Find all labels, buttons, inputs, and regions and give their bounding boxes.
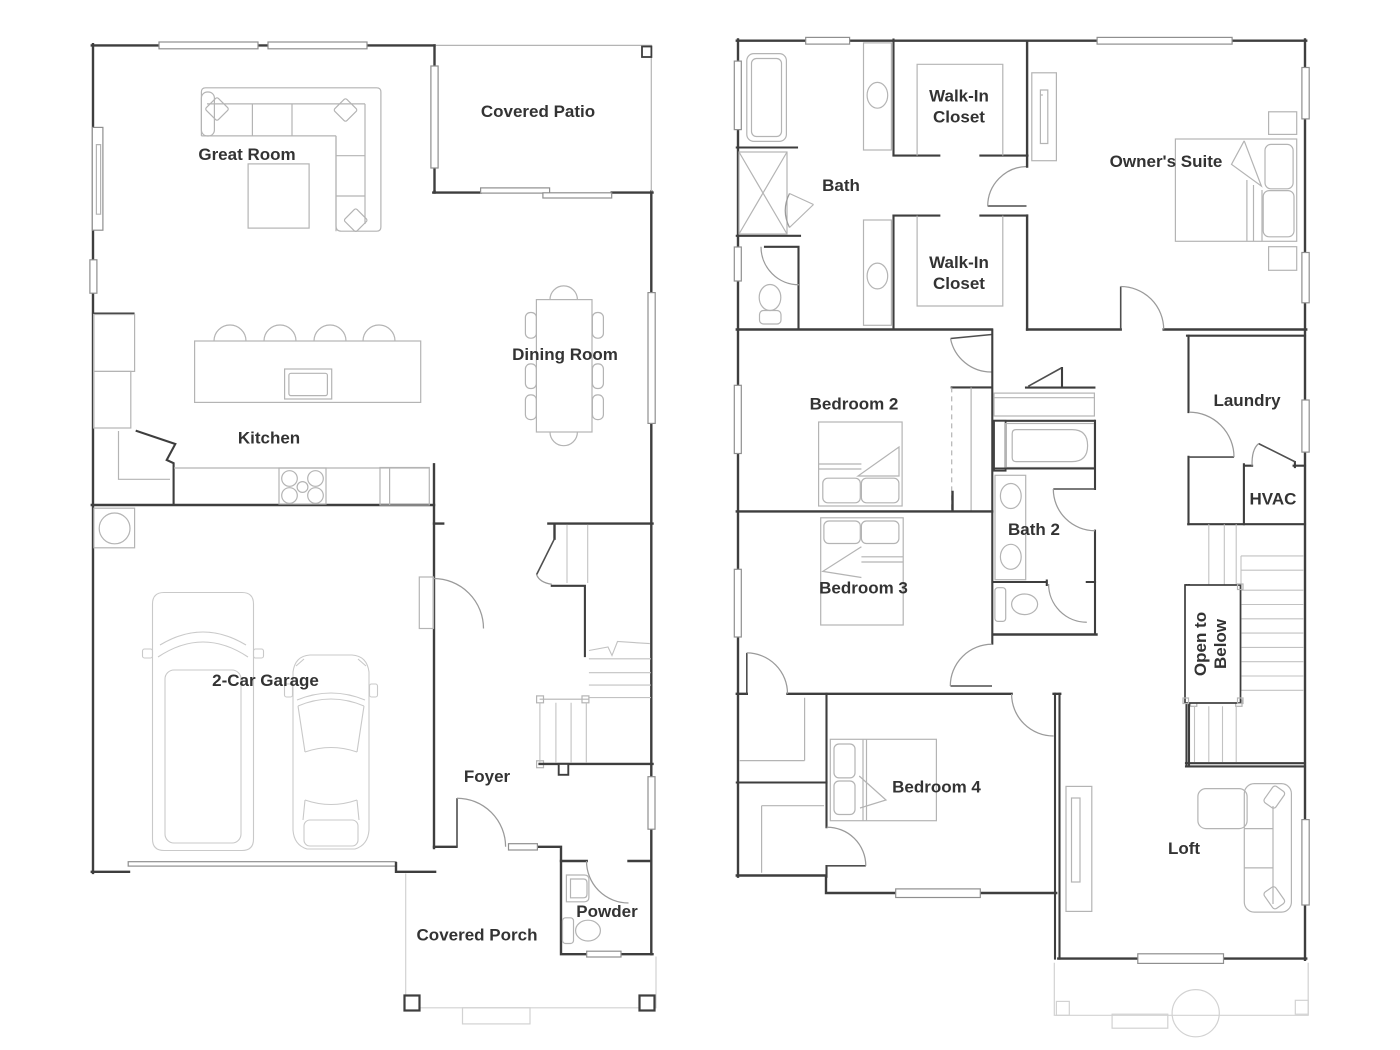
svg-text:Bedroom 3: Bedroom 3 — [819, 579, 908, 598]
svg-text:Great Room: Great Room — [198, 145, 295, 164]
svg-text:Closet: Closet — [933, 274, 985, 293]
svg-text:Bedroom 4: Bedroom 4 — [892, 778, 981, 797]
svg-text:Kitchen: Kitchen — [238, 429, 300, 448]
svg-text:Closet: Closet — [933, 108, 985, 127]
svg-text:Laundry: Laundry — [1213, 391, 1281, 410]
svg-text:Covered Porch: Covered Porch — [417, 926, 538, 945]
svg-text:Powder: Powder — [576, 902, 638, 921]
svg-text:Covered Patio: Covered Patio — [481, 102, 595, 121]
svg-text:Loft: Loft — [1168, 839, 1200, 858]
svg-text:Owner's Suite: Owner's Suite — [1110, 152, 1223, 171]
svg-text:2-Car Garage: 2-Car Garage — [212, 671, 319, 690]
svg-text:Walk-In: Walk-In — [929, 253, 989, 272]
svg-text:Bedroom 2: Bedroom 2 — [810, 395, 899, 414]
svg-text:HVAC: HVAC — [1250, 490, 1297, 509]
svg-text:Below: Below — [1211, 618, 1230, 669]
svg-text:Bath: Bath — [822, 176, 860, 195]
svg-text:Bath 2: Bath 2 — [1008, 520, 1060, 539]
svg-text:Dining Room: Dining Room — [512, 345, 618, 364]
svg-text:Walk-In: Walk-In — [929, 87, 989, 106]
svg-text:Foyer: Foyer — [464, 767, 511, 786]
svg-text:Open to: Open to — [1191, 612, 1210, 676]
